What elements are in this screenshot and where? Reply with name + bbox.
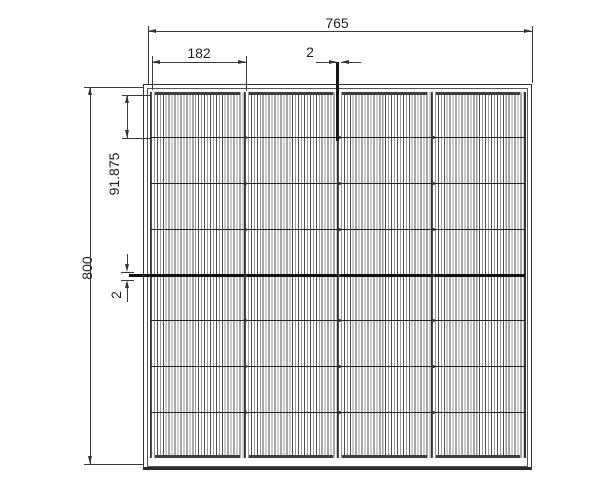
joint-dot <box>338 182 341 185</box>
dim-label-cell-height: 91.875 <box>107 148 121 200</box>
ext-line-row-gap-top <box>121 272 134 273</box>
joint-dot <box>244 228 247 231</box>
busbar-bottom <box>436 455 521 458</box>
joint-dot <box>244 274 247 277</box>
arrow-down-icon <box>125 130 129 138</box>
row-line <box>129 274 525 276</box>
dim-line-cell-width <box>152 62 246 63</box>
joint-dot <box>432 411 435 414</box>
dim-label-row-gap: 2 <box>109 283 123 307</box>
busbar-bottom <box>249 455 334 458</box>
arrow-up-icon <box>125 95 129 103</box>
arrow-left-icon <box>148 29 156 33</box>
arrow-up-icon <box>88 87 92 95</box>
joint-dot <box>244 182 247 185</box>
dim-label-column-gap: 2 <box>298 45 322 59</box>
arrow-down-icon <box>88 456 92 464</box>
joint-dot <box>432 228 435 231</box>
ext-line-overall-height-bottom <box>84 464 144 465</box>
dim-line-overall-width <box>148 31 532 32</box>
joint-dot <box>338 411 341 414</box>
joint-dot <box>244 136 247 139</box>
ext-line-cell-height-bottom <box>122 138 150 139</box>
column-gap-leader-line <box>336 62 338 141</box>
ext-line-overall-height-top <box>84 87 144 88</box>
cell-area <box>150 92 526 458</box>
joint-dot <box>338 228 341 231</box>
joint-dot <box>338 319 341 322</box>
dim-line-row-gap-upper <box>127 254 128 264</box>
joint-dot <box>432 136 435 139</box>
drawing-canvas: 765 182 2 800 91.875 2 <box>0 0 614 503</box>
joint-dot <box>432 365 435 368</box>
arrow-up-icon <box>125 280 129 288</box>
ext-line-cell-width-right <box>246 56 247 91</box>
joint-dot <box>432 319 435 322</box>
ext-line-overall-width-left <box>148 26 149 84</box>
joint-dot <box>338 274 341 277</box>
busbar-bottom <box>155 455 240 458</box>
dim-label-overall-width: 765 <box>315 16 359 30</box>
busbar-top <box>249 92 334 95</box>
arrow-right-icon <box>329 60 337 64</box>
joint-dot <box>244 411 247 414</box>
busbar-bottom <box>342 455 427 458</box>
arrow-left-icon <box>341 60 349 64</box>
busbar-top <box>155 92 240 95</box>
ext-line-overall-width-right <box>532 26 533 83</box>
busbar-top <box>342 92 427 95</box>
arrow-down-icon <box>125 264 129 272</box>
busbar-top <box>436 92 521 95</box>
joint-dot <box>432 182 435 185</box>
dim-line-row-gap-lower <box>127 288 128 302</box>
joint-dot <box>338 365 341 368</box>
arrow-left-icon <box>152 60 160 64</box>
joint-dot <box>244 319 247 322</box>
dim-label-overall-height: 800 <box>80 247 94 289</box>
arrow-right-icon <box>238 60 246 64</box>
dim-label-cell-width: 182 <box>177 46 221 60</box>
joint-dot <box>244 365 247 368</box>
arrow-right-icon <box>524 29 532 33</box>
joint-dot <box>432 274 435 277</box>
